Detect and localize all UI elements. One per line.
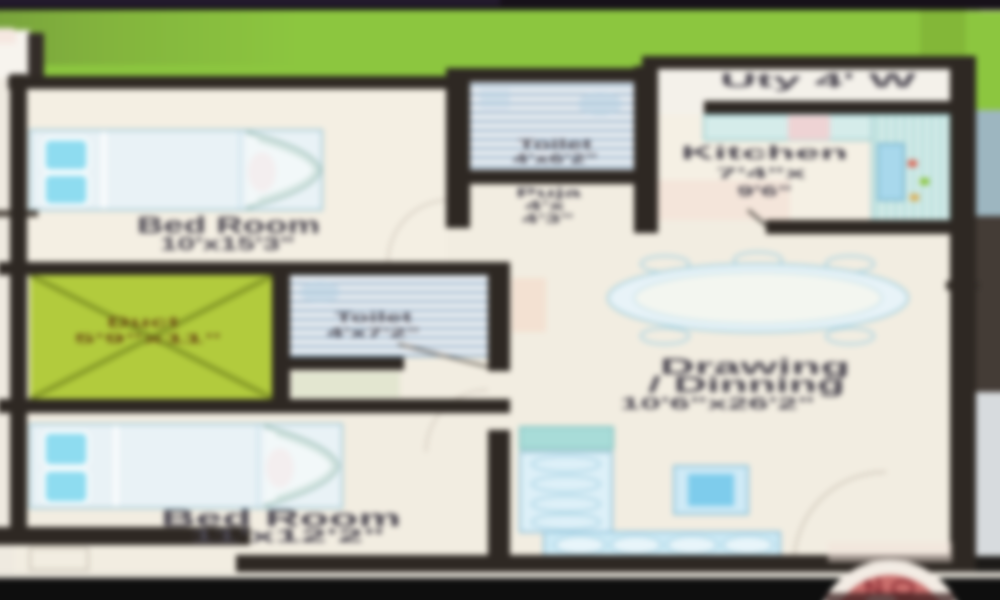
- svg-text:10'x15'3": 10'x15'3": [160, 234, 295, 254]
- svg-text:4'x: 4'x: [525, 199, 565, 213]
- svg-text:Puja: Puja: [516, 186, 584, 200]
- svg-text:4'x6'2": 4'x6'2": [513, 151, 598, 166]
- svg-text:7'4"x: 7'4"x: [716, 165, 808, 182]
- svg-text:9'6": 9'6": [737, 183, 792, 200]
- svg-text:11'x12'2": 11'x12'2": [190, 526, 385, 546]
- svg-text:Toilet: Toilet: [335, 309, 413, 325]
- svg-text:4'x7'2": 4'x7'2": [327, 325, 420, 340]
- svg-text:10'6"x26'2": 10'6"x26'2": [620, 394, 815, 413]
- svg-text:5'9"x11": 5'9"x11": [74, 331, 222, 346]
- svg-text:Toilet: Toilet: [518, 136, 593, 152]
- svg-text:Kitchen: Kitchen: [681, 143, 848, 163]
- svg-text:4'3": 4'3": [522, 212, 574, 226]
- svg-text:Uty 4' W: Uty 4' W: [720, 71, 916, 92]
- svg-text:Duct: Duct: [107, 314, 179, 331]
